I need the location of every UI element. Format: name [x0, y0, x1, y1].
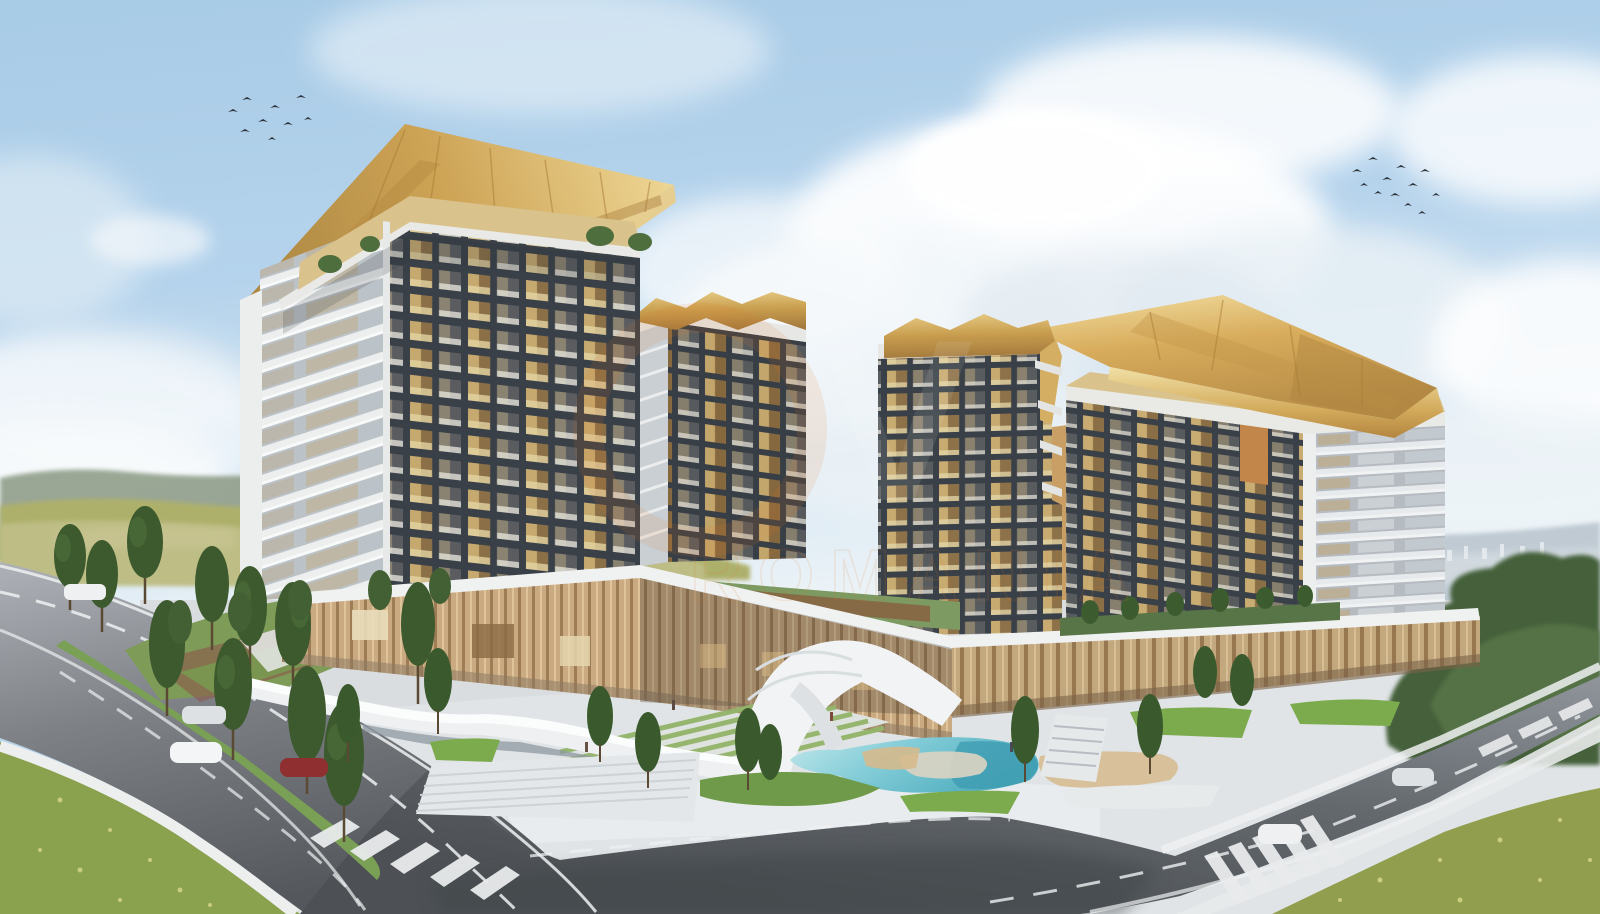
svg-text:V: V — [820, 292, 973, 549]
svg-text:ROMANIA: ROMANIA — [690, 536, 1146, 616]
